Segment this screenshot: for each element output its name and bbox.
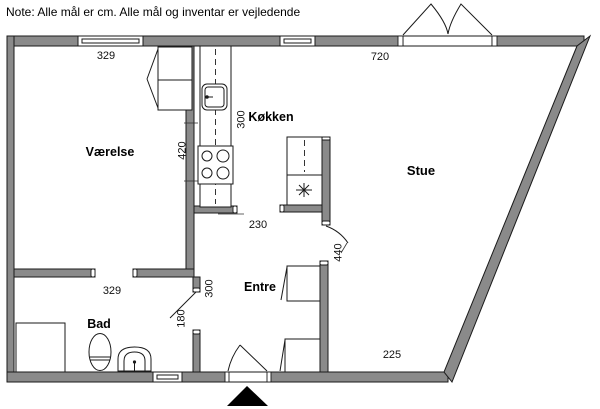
wall-cap — [322, 137, 330, 140]
wall-cap — [91, 269, 95, 277]
room-label-bad: Bad — [59, 317, 139, 332]
wall-koekken-block-right — [322, 137, 330, 225]
wall-left — [7, 36, 14, 382]
wardrobe-icon — [147, 47, 192, 110]
dimension-label-vaerelse-top: 329 — [89, 50, 123, 63]
dimension-label-entre-width: 300 — [204, 272, 217, 306]
wall-top-c — [315, 36, 403, 46]
dimension-label-bad-top: 329 — [95, 285, 129, 298]
wall-cap — [193, 288, 200, 292]
wall-cap — [233, 206, 237, 213]
entrance-arrow-icon — [227, 386, 268, 406]
wall-bad-right-b — [193, 330, 200, 372]
closet-icon-entre-bottom — [280, 339, 320, 372]
wall-diagonal-right — [444, 36, 590, 382]
wall-bad-divider-b — [133, 269, 194, 277]
entrance-door-icon — [225, 345, 271, 382]
note-text: Note: Alle mål er cm. Alle mål og invent… — [6, 5, 300, 19]
washbasin-icon — [118, 347, 151, 371]
wall-cap — [280, 205, 284, 212]
dimension-label-koekken-opening: 230 — [241, 219, 275, 232]
window-icon-bad — [153, 372, 182, 382]
room-label-entre: Entre — [220, 280, 300, 295]
toilet-icon — [89, 334, 111, 371]
wall-top-d — [492, 36, 584, 46]
wall-cap — [193, 330, 200, 334]
dimension-label-stue-top: 720 — [363, 51, 397, 64]
dimension-label-koekken-height: 420 — [177, 134, 190, 168]
wall-cap — [320, 261, 328, 265]
wall-cap — [133, 269, 137, 277]
wall-entre-stue-divider — [320, 261, 328, 372]
wall-bottom-a — [7, 372, 153, 382]
room-label-stue: Stue — [381, 163, 461, 178]
wall-top-b — [143, 36, 280, 46]
wall-bottom-b — [182, 372, 228, 382]
stove-icon — [198, 146, 233, 184]
floor-plan: Note: Alle mål er cm. Alle mål og invent… — [0, 0, 600, 409]
kitchen-sink-icon — [202, 84, 227, 110]
window-icon-stue — [280, 36, 315, 46]
shower-icon — [16, 323, 65, 372]
window-icon-vaerelse — [78, 36, 143, 46]
double-door-icon-top — [398, 4, 497, 46]
wall-bottom-c — [268, 372, 448, 382]
wall-top-a — [7, 36, 78, 46]
dimension-label-stue-entry: 440 — [333, 236, 346, 270]
dimension-label-koekken-width: 300 — [236, 103, 249, 137]
dimension-label-bad-door: 180 — [176, 302, 189, 336]
wall-cap — [322, 221, 330, 225]
room-label-vaerelse: Værelse — [70, 145, 150, 160]
dimension-label-stue-bottom: 225 — [375, 349, 409, 362]
wall-bad-divider-a — [14, 269, 95, 277]
